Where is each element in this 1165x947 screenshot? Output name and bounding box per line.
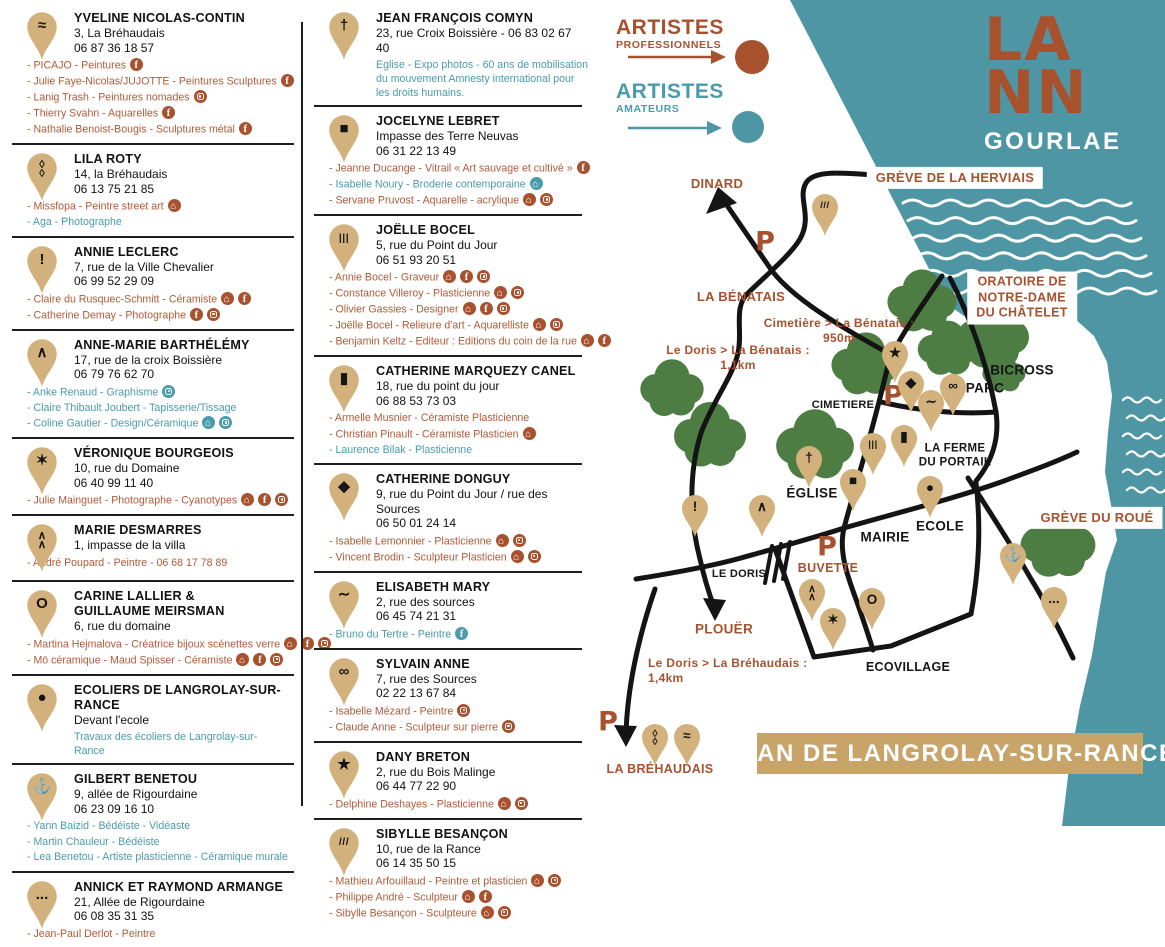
map-pin: ⚓ [998, 542, 1028, 586]
column-divider [301, 22, 303, 806]
artist-entry-text: - Isabelle Mézard - Peintre [329, 705, 453, 717]
artist-entry-text: - Claire Thibault Joubert - Tapisserie/T… [27, 402, 236, 414]
artist-phone: 06 14 35 50 15 [376, 856, 582, 871]
map-pin: ▮ [889, 424, 919, 468]
artist-block: ■JOCELYNE LEBRETImpasse des Terre Neuvas… [314, 107, 582, 216]
artist-phone: 06 79 76 62 70 [74, 367, 294, 382]
artist-address: 9, rue du Point du Jour / rue des Source… [376, 487, 582, 516]
artist-entry: - Claire Thibault Joubert - Tapisserie/T… [12, 401, 294, 417]
artist-entry-text: - Isabelle Noury - Broderie contemporain… [329, 179, 526, 191]
artist-entry: Travaux des écoliers de Langrolay-sur-Ra… [12, 730, 286, 758]
artist-block: ◆CATHERINE DONGUY9, rue du Point du Jour… [314, 465, 582, 573]
artist-entries: - Isabelle Mézard - Peintre- Claude Anne… [314, 704, 582, 736]
legend-amateurs-title: ARTISTES [616, 80, 724, 103]
artist-block: ∞SYLVAIN ANNE7, rue des Sources02 22 13 … [314, 650, 582, 743]
artist-entry: - Aga - Photographe [12, 215, 294, 231]
artist-entry-text: - Missfopa - Peintre street art [27, 201, 164, 213]
artist-entry: - Christian Pinault - Céramiste Plastici… [314, 427, 582, 443]
artist-block: †JEAN FRANÇOIS COMYN23, rue Croix Boissi… [314, 4, 582, 107]
artist-entry-text: - Aga - Photographe [27, 216, 122, 228]
pin-glyph: ∼ [916, 391, 946, 413]
artist-name: GILBERT BENETOU [74, 772, 294, 787]
artist-entry-text: - Coline Gautier - Design/Céramique [27, 418, 198, 430]
artist-block: ∧ANNE-MARIE BARTHÉLÉMY17, rue de la croi… [12, 331, 294, 440]
artist-entry-text: - Mathieu Arfouillaud - Peintre et plast… [329, 875, 527, 887]
facebook-icon [130, 58, 143, 71]
artist-name: YVELINE NICOLAS-CONTIN [74, 11, 294, 26]
artist-name: CARINE LALLIER & GUILLAUME MEIRSMAN [74, 589, 294, 619]
location-pin-icon: ■ [327, 114, 361, 164]
website-icon [443, 270, 456, 283]
pin-glyph: ||| [858, 434, 888, 456]
instagram-icon [477, 270, 490, 283]
location-pin-icon: ≈ [25, 11, 59, 61]
pin-glyph: ◊ ◊ [640, 725, 670, 746]
instagram-icon [207, 308, 220, 321]
map-pin: ◊ ◊ [640, 723, 670, 767]
instagram-icon [515, 797, 528, 810]
artist-entry-text: - Sibylle Besançon - Sculpteure [329, 907, 477, 919]
location-pin-icon: ◊ ◊ [25, 152, 59, 202]
parking-marker: P [598, 707, 618, 738]
artist-name: LILA ROTY [74, 152, 294, 167]
pin-glyph: ∧ ∧ [797, 580, 827, 601]
pin-glyph: ≈ [672, 725, 702, 747]
artist-entry: - Lanig Trash - Peintures nomades [12, 90, 294, 106]
artist-entry: - Isabelle Lemonnier - Plasticienne [314, 534, 582, 550]
artist-entry: - Thierry Svahn - Aquarelles [12, 106, 294, 122]
artist-entry-text: - Delphine Deshayes - Plasticienne [329, 798, 494, 810]
block-header: CARINE LALLIER & GUILLAUME MEIRSMAN6, ru… [74, 589, 294, 634]
artist-block: |||JOËLLE BOCEL5, rue du Point du Jour06… [314, 216, 582, 357]
artist-name: JEAN FRANÇOIS COMYN [376, 11, 582, 26]
artist-entry-text: - Mö céramique - Maud Spisser - Céramist… [27, 654, 232, 666]
artist-entries: - Anke Renaud - Graphisme- Claire Thibau… [12, 385, 294, 433]
artist-block: ●ECOLIERS DE LANGROLAY-SUR-RANCEDevant l… [12, 676, 294, 766]
pin-glyph: ≈ [25, 14, 59, 38]
instagram-icon [528, 550, 541, 563]
pin-glyph: /// [810, 195, 840, 217]
pin-glyph: ... [25, 883, 59, 907]
artist-entry: - Nathalie Benoist-Bougis - Sculptures m… [12, 122, 294, 138]
block-header: DANY BRETON2, rue du Bois Malinge06 44 7… [376, 750, 582, 794]
artist-name: ELISABETH MARY [376, 580, 582, 595]
map-label: DINARD [691, 176, 743, 192]
map-label: LE DORIS [712, 568, 766, 582]
website-icon [463, 302, 476, 315]
artist-phone: 06 23 09 16 10 [74, 802, 294, 817]
artist-entry: - Isabelle Noury - Broderie contemporain… [314, 177, 582, 193]
location-pin-icon: ∧ ∧ [25, 523, 59, 573]
artist-address: 10, rue du Domaine [74, 461, 294, 476]
artist-address: 5, rue du Point du Jour [376, 238, 582, 253]
artist-entry-text: - Claire du Rusquec-Schmitt - Céramiste [27, 293, 217, 305]
website-icon [511, 550, 524, 563]
block-header: YVELINE NICOLAS-CONTIN3, La Bréhaudais06… [74, 11, 294, 55]
artist-block: ∼ELISABETH MARY2, rue des sources06 45 7… [314, 573, 582, 650]
map-pin: ∧ [747, 494, 777, 538]
artist-phone: 06 50 01 24 14 [376, 516, 582, 531]
facebook-icon [479, 890, 492, 903]
artist-block: ≈YVELINE NICOLAS-CONTIN3, La Bréhaudais0… [12, 4, 294, 145]
instagram-icon [275, 493, 288, 506]
artist-entry: - Olivier Gassies - Designer [314, 302, 582, 318]
artist-name: MARIE DESMARRES [74, 523, 294, 538]
legend: ARTISTES PROFESSIONNELS ARTISTES AMATEUR… [616, 16, 724, 115]
facebook-icon [258, 493, 271, 506]
block-header: JOËLLE BOCEL5, rue du Point du Jour06 51… [376, 223, 582, 267]
map-pin: ∼ [916, 389, 946, 433]
artist-entry-text: - Nathalie Benoist-Bougis - Sculptures m… [27, 124, 235, 136]
artist-entry-text: - Laurence Bilak - Plasticienne [329, 444, 472, 456]
block-header: CATHERINE MARQUEZY CANEL18, rue du point… [376, 364, 582, 408]
pin-glyph: ∧ [747, 496, 777, 518]
location-pin-icon: ... [25, 880, 59, 930]
instagram-icon [194, 90, 207, 103]
logo-line-3: GOURLAE [984, 128, 1122, 156]
artist-address: 7, rue des Sources [376, 672, 582, 687]
artist-address: 2, rue du Bois Malinge [376, 765, 582, 780]
location-pin-icon: ∞ [327, 657, 361, 707]
artist-entry: - Martin Chauleur - Bédéiste [12, 835, 294, 851]
pin-glyph: O [857, 589, 887, 611]
map-pin: ✶ [818, 607, 848, 651]
artist-entry: - Joëlle Bocel - Relieure d'art - Aquare… [314, 318, 582, 334]
block-header: JEAN FRANÇOIS COMYN23, rue Croix Boissiè… [376, 11, 582, 55]
artist-list-column-2: †JEAN FRANÇOIS COMYN23, rue Croix Boissi… [314, 4, 582, 927]
location-pin-icon: ✶ [25, 446, 59, 496]
artist-entry-text: Eglise - Expo photos - 60 ans de mobilis… [376, 59, 588, 99]
artist-entry: - Benjamin Keltz - Editeur : Editions du… [314, 334, 582, 350]
website-icon [168, 199, 181, 212]
pin-glyph: ● [915, 477, 945, 499]
block-header: GILBERT BENETOU9, allée de Rigourdaine06… [74, 772, 294, 816]
pin-glyph: ∧ [25, 341, 59, 365]
artist-name: JOËLLE BOCEL [376, 223, 582, 238]
map-pin: /// [810, 193, 840, 237]
facebook-icon [239, 122, 252, 135]
map-label: PLOUËR [695, 622, 753, 639]
legend-amateurs-sub: AMATEURS [616, 103, 724, 115]
artist-address: 3, La Bréhaudais [74, 26, 294, 41]
facebook-icon [238, 292, 251, 305]
artist-entries: - Claire du Rusquec-Schmitt - Céramiste-… [12, 292, 294, 324]
lann-gourlae-logo: LA NN GOURLAE [984, 14, 1122, 156]
website-icon [581, 334, 594, 347]
map-pin: ■ [838, 468, 868, 512]
artist-entry-text: - PICAJO - Peintures [27, 60, 126, 72]
artist-entry-text: - Isabelle Lemonnier - Plasticienne [329, 535, 492, 547]
location-pin-icon: ▮ [327, 364, 361, 414]
artist-address: 23, rue Croix Boissière - 06 83 02 67 40 [376, 26, 582, 55]
pin-glyph: ◆ [327, 475, 361, 499]
artist-phone: 06 45 74 21 31 [376, 609, 582, 624]
pin-glyph: ✶ [818, 609, 848, 631]
facebook-icon [460, 270, 473, 283]
pin-glyph: ◊ ◊ [25, 155, 59, 178]
instagram-icon [513, 534, 526, 547]
artist-entry-text: - Julie Mainguet - Photographe - Cyanoty… [27, 495, 237, 507]
artist-entry: - Mö céramique - Maud Spisser - Céramist… [12, 653, 294, 669]
location-pin-icon: † [327, 11, 361, 61]
website-icon [241, 493, 254, 506]
map-label: CIMETIERE [812, 399, 875, 413]
block-header: VÉRONIQUE BOURGEOIS10, rue du Domaine06 … [74, 446, 294, 490]
pin-glyph: ✶ [25, 449, 59, 473]
map-pin: ! [680, 494, 710, 538]
legend-professionals-sub: PROFESSIONNELS [616, 39, 724, 51]
artist-entry: - Constance Villeroy - Plasticienne [314, 286, 582, 302]
pin-glyph: ! [25, 248, 59, 272]
facebook-icon [598, 334, 611, 347]
artist-block: ✶VÉRONIQUE BOURGEOIS10, rue du Domaine06… [12, 439, 294, 516]
artist-entry: - Claude Anne - Sculpteur sur pierre [314, 720, 582, 736]
artist-address: Devant l'ecole [74, 713, 294, 728]
map-label: GRÈVE DU ROUÉ [1032, 507, 1163, 529]
artist-name: SIBYLLE BESANÇON [376, 827, 582, 842]
artist-entry-text: - Benjamin Keltz - Editeur : Editions du… [329, 336, 577, 348]
website-icon [202, 416, 215, 429]
location-pin-icon: ⚓ [25, 772, 59, 822]
artist-block: ⚓GILBERT BENETOU9, allée de Rigourdaine0… [12, 765, 294, 873]
artist-block: ///SIBYLLE BESANÇON10, rue de la Rance06… [314, 820, 582, 927]
facebook-icon [301, 637, 314, 650]
pin-glyph: ▮ [889, 426, 919, 448]
artist-entry-text: - Constance Villeroy - Plasticienne [329, 288, 490, 300]
artist-phone: 02 22 13 67 84 [376, 686, 582, 701]
website-icon [236, 653, 249, 666]
map-title: PLAN DE LANGROLAY-SUR-RANCE [724, 740, 1165, 768]
website-icon [523, 193, 536, 206]
artist-list-column-1: ≈YVELINE NICOLAS-CONTIN3, La Bréhaudais0… [12, 4, 294, 947]
artist-phone: 06 08 35 31 35 [74, 909, 294, 924]
instagram-icon [511, 286, 524, 299]
map-pin: O [857, 587, 887, 631]
artist-phone: 06 31 22 13 49 [376, 144, 582, 159]
artist-address: 14, la Bréhaudais [74, 167, 294, 182]
instagram-icon [548, 874, 561, 887]
artist-name: DANY BRETON [376, 750, 582, 765]
block-header: ECOLIERS DE LANGROLAY-SUR-RANCEDevant l'… [74, 683, 294, 728]
facebook-icon [455, 627, 468, 640]
map-label: MAIRIE [860, 530, 909, 547]
map-label: ORATOIRE DE NOTRE-DAME DU CHÂTELET [967, 272, 1077, 325]
website-icon [481, 906, 494, 919]
parking-marker: P [817, 532, 837, 563]
location-pin-icon: ● [25, 683, 59, 733]
artist-entry-text: - Thierry Svahn - Aquarelles [27, 108, 158, 120]
website-icon [523, 427, 536, 440]
artist-entry-text: Travaux des écoliers de Langrolay-sur-Ra… [74, 731, 257, 757]
artist-address: 9, allée de Rigourdaine [74, 787, 294, 802]
artist-entry-text: - Julie Faye-Nicolas/JUJOTTE - Peintures… [27, 76, 277, 88]
legend-professionals-title: ARTISTES [616, 16, 724, 39]
artist-entry-text: - Lanig Trash - Peintures nomades [27, 92, 190, 104]
artist-entry-text: - Lea Benetou - Artiste plasticienne - C… [27, 851, 288, 863]
block-header: LILA ROTY14, la Bréhaudais06 13 75 21 85 [74, 152, 294, 196]
artist-entry: - Servane Pruvost - Aquarelle - acryliqu… [314, 193, 582, 209]
artist-entry-text: - Philippe André - Sculpteur [329, 891, 458, 903]
artist-block: !ANNIE LECLERC7, rue de la Ville Chevali… [12, 238, 294, 331]
artist-phone: 06 13 75 21 85 [74, 182, 294, 197]
block-header: ELISABETH MARY2, rue des sources06 45 74… [376, 580, 582, 624]
artist-entry: - Julie Faye-Nicolas/JUJOTTE - Peintures… [12, 74, 294, 90]
map-label: LA BÉNATAIS [697, 289, 785, 305]
block-header: ANNIE LECLERC7, rue de la Ville Chevalie… [74, 245, 294, 289]
artist-entries: - Isabelle Lemonnier - Plasticienne- Vin… [314, 534, 582, 566]
pin-glyph: ∼ [327, 583, 361, 607]
artist-entries: - Armelle Musnier - Céramiste Plasticien… [314, 411, 582, 458]
block-header: ANNICK ET RAYMOND ARMANGE21, Allée de Ri… [74, 880, 294, 924]
artist-entry-text: - Jeanne Ducange - Vitrail « Art sauvage… [329, 163, 573, 175]
artist-entries: - Annie Bocel - Graveur- Constance Ville… [314, 270, 582, 350]
artist-name: ANNIE LECLERC [74, 245, 294, 260]
artist-entry-text: - Claude Anne - Sculpteur sur pierre [329, 721, 498, 733]
pin-glyph: † [327, 14, 361, 38]
artist-entry-text: - Anke Renaud - Graphisme [27, 386, 158, 398]
block-header: SIBYLLE BESANÇON10, rue de la Rance06 14… [376, 827, 582, 871]
artist-entry-text: - Servane Pruvost - Aquarelle - acryliqu… [329, 195, 519, 207]
artist-entries: - Mathieu Arfouillaud - Peintre et plast… [314, 874, 582, 922]
map-label: PARC [966, 381, 1004, 398]
website-icon [530, 177, 543, 190]
artist-entry-text: - Vincent Brodin - Sculpteur Plasticien [329, 551, 507, 563]
artist-entry-text: - Joëlle Bocel - Relieure d'art - Aquare… [329, 320, 529, 332]
facebook-icon [190, 308, 203, 321]
location-pin-icon: ||| [327, 223, 361, 273]
location-pin-icon: O [25, 589, 59, 639]
facebook-icon [480, 302, 493, 315]
artist-phone: 06 40 99 11 40 [74, 476, 294, 491]
facebook-icon [162, 106, 175, 119]
artist-entry: - Sibylle Besançon - Sculpteure [314, 906, 582, 922]
map-label: GRÈVE DE LA HERVIAIS [867, 167, 1043, 189]
artist-entry: - Coline Gautier - Design/Céramique [12, 416, 294, 432]
website-icon [221, 292, 234, 305]
map-pin: ... [1039, 586, 1069, 630]
block-header: JOCELYNE LEBRETImpasse des Terre Neuvas0… [376, 114, 582, 158]
facebook-icon [577, 161, 590, 174]
pin-glyph: ■ [327, 117, 361, 141]
block-header: ANNE-MARIE BARTHÉLÉMY17, rue de la croix… [74, 338, 294, 382]
artist-entries: Travaux des écoliers de Langrolay-sur-Ra… [12, 730, 294, 758]
artist-entries: - Missfopa - Peintre street art- Aga - P… [12, 199, 294, 231]
artist-entries: - Martina Hejmalova - Créatrice bijoux s… [12, 637, 294, 669]
artist-entry-text: - Bruno du Tertre - Peintre [329, 628, 451, 640]
artist-entry-text: - Annie Bocel - Graveur [329, 272, 439, 284]
location-pin-icon: ◆ [327, 472, 361, 522]
artist-block: ∧ ∧MARIE DESMARRES1, impasse de la villa… [12, 516, 294, 582]
pin-glyph: /// [327, 830, 361, 854]
logo-line-2: NN [984, 67, 1122, 120]
artist-name: SYLVAIN ANNE [376, 657, 582, 672]
website-icon [462, 890, 475, 903]
artist-address: 10, rue de la Rance [376, 842, 582, 857]
map-label: BICROSS [990, 363, 1054, 380]
artist-address: 7, rue de la Ville Chevalier [74, 260, 294, 275]
website-icon [284, 637, 297, 650]
artist-phone: 06 99 52 29 09 [74, 274, 294, 289]
pin-glyph: ■ [838, 470, 868, 492]
artist-entry-text: - Catherine Demay - Photographe [27, 309, 186, 321]
artist-name: JOCELYNE LEBRET [376, 114, 582, 129]
artist-name: ANNE-MARIE BARTHÉLÉMY [74, 338, 294, 353]
website-icon [496, 534, 509, 547]
artist-name: VÉRONIQUE BOURGEOIS [74, 446, 294, 461]
website-icon [533, 318, 546, 331]
pin-glyph: ∞ [327, 660, 361, 684]
pin-glyph: ★ [327, 753, 361, 777]
website-icon [498, 797, 511, 810]
artist-block: OCARINE LALLIER & GUILLAUME MEIRSMAN6, r… [12, 582, 294, 676]
pin-glyph: ● [25, 686, 59, 710]
artist-name: CATHERINE MARQUEZY CANEL [376, 364, 582, 379]
artist-entry: - Philippe André - Sculpteur [314, 890, 582, 906]
instagram-icon [270, 653, 283, 666]
block-header: CATHERINE DONGUY9, rue du Point du Jour … [376, 472, 582, 531]
instagram-icon [219, 416, 232, 429]
map-label: Le Doris > La Bénatais : 1,1km [666, 343, 810, 373]
map-title-banner: PLAN DE LANGROLAY-SUR-RANCE [757, 733, 1143, 774]
artist-entries: - PICAJO - Peintures- Julie Faye-Nicolas… [12, 58, 294, 138]
artist-entry-text: - Christian Pinault - Céramiste Plastici… [329, 428, 519, 440]
artist-entry: - Vincent Brodin - Sculpteur Plasticien [314, 550, 582, 566]
facebook-icon [281, 74, 294, 87]
parking-marker: P [755, 227, 775, 258]
artist-entry: Eglise - Expo photos - 60 ans de mobilis… [314, 58, 588, 100]
artist-block: ...ANNICK ET RAYMOND ARMANGE21, Allée de… [12, 873, 294, 947]
artist-block: ◊ ◊LILA ROTY14, la Bréhaudais06 13 75 21… [12, 145, 294, 238]
artist-entries: - Jeanne Ducange - Vitrail « Art sauvage… [314, 161, 582, 209]
map-label: LA FERME DU PORTAIL [919, 442, 991, 471]
pin-glyph: † [794, 447, 824, 469]
artist-name: CATHERINE DONGUY [376, 472, 582, 487]
map-label: BUVETTE [798, 561, 858, 577]
artist-name: ANNICK ET RAYMOND ARMANGE [74, 880, 294, 895]
location-pin-icon: ∼ [327, 580, 361, 630]
pin-glyph: ⚓ [998, 544, 1028, 566]
artist-entry: - Catherine Demay - Photographe [12, 308, 294, 324]
artist-address: Impasse des Terre Neuvas [376, 129, 582, 144]
artist-entry-text: - Olivier Gassies - Designer [329, 304, 459, 316]
instagram-icon [502, 720, 515, 733]
instagram-icon [162, 385, 175, 398]
artist-phone: 06 87 36 18 57 [74, 41, 294, 56]
instagram-icon [550, 318, 563, 331]
artist-name: ECOLIERS DE LANGROLAY-SUR-RANCE [74, 683, 294, 713]
artist-address: 21, Allée de Rigourdaine [74, 895, 294, 910]
map-label: ECOVILLAGE [866, 660, 950, 676]
pin-glyph: ∧ ∧ [25, 526, 59, 549]
artist-entry: - Lea Benetou - Artiste plasticienne - C… [12, 850, 294, 866]
pin-glyph: ||| [327, 226, 361, 250]
artist-phone: 06 51 93 20 51 [376, 253, 582, 268]
pin-glyph: ★ [880, 342, 910, 364]
artist-address: 2, rue des sources [376, 595, 582, 610]
artist-address: 18, rue du point du jour [376, 379, 582, 394]
map-pin: † [794, 445, 824, 489]
block-header: SYLVAIN ANNE7, rue des Sources02 22 13 6… [376, 657, 582, 701]
artist-block: ★DANY BRETON2, rue du Bois Malinge06 44 … [314, 743, 582, 820]
artist-entry: - Laurence Bilak - Plasticienne [314, 443, 582, 459]
instagram-icon [457, 704, 470, 717]
map-pin: ≈ [672, 723, 702, 767]
artist-phone: 06 44 77 22 90 [376, 779, 582, 794]
pin-glyph: ... [1039, 588, 1069, 610]
location-pin-icon: ★ [327, 750, 361, 800]
block-header: MARIE DESMARRES1, impasse de la villa [74, 523, 294, 553]
map-pin: ● [915, 475, 945, 519]
